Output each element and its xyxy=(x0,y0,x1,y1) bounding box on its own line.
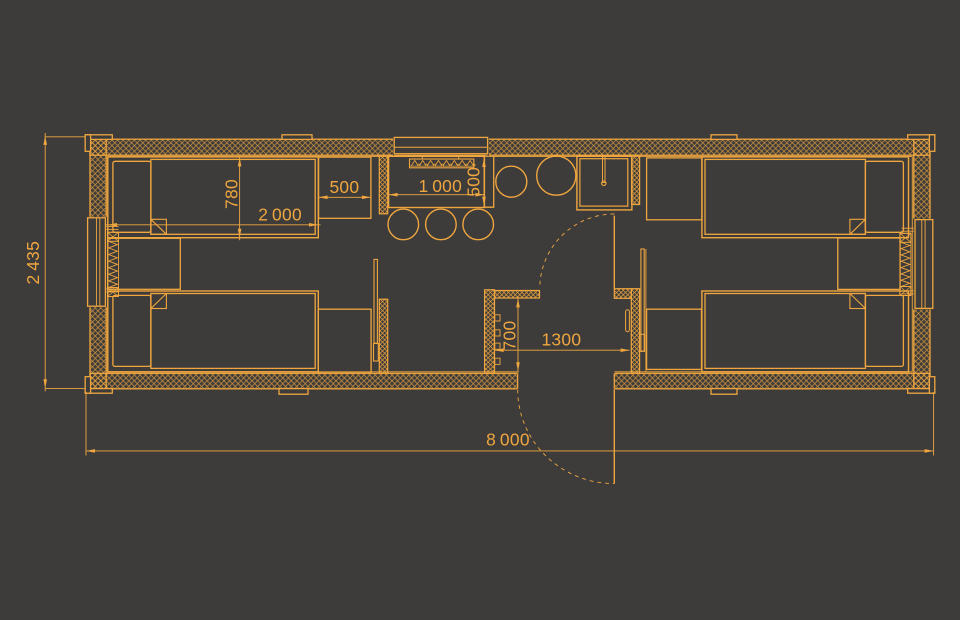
svg-text:2 435: 2 435 xyxy=(23,241,43,285)
svg-text:1 000: 1 000 xyxy=(418,176,462,196)
svg-text:700: 700 xyxy=(500,321,520,351)
svg-text:2 000: 2 000 xyxy=(258,205,302,225)
svg-text:8 000: 8 000 xyxy=(486,430,530,450)
svg-text:1300: 1300 xyxy=(541,330,581,350)
svg-text:500: 500 xyxy=(329,177,359,197)
svg-text:500: 500 xyxy=(464,167,484,197)
svg-text:780: 780 xyxy=(221,179,241,209)
